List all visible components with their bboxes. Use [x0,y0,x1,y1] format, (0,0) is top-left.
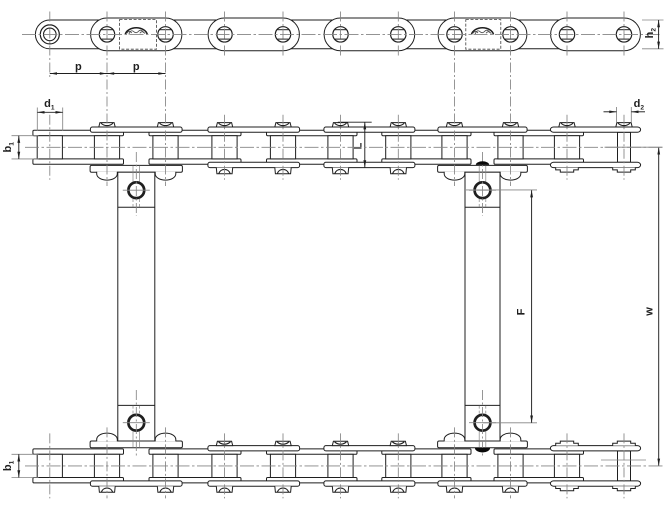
svg-text:p: p [75,61,82,73]
svg-text:w: w [644,307,656,317]
svg-text:p: p [133,61,140,73]
svg-text:L: L [353,142,365,149]
svg-text:F: F [516,308,528,315]
